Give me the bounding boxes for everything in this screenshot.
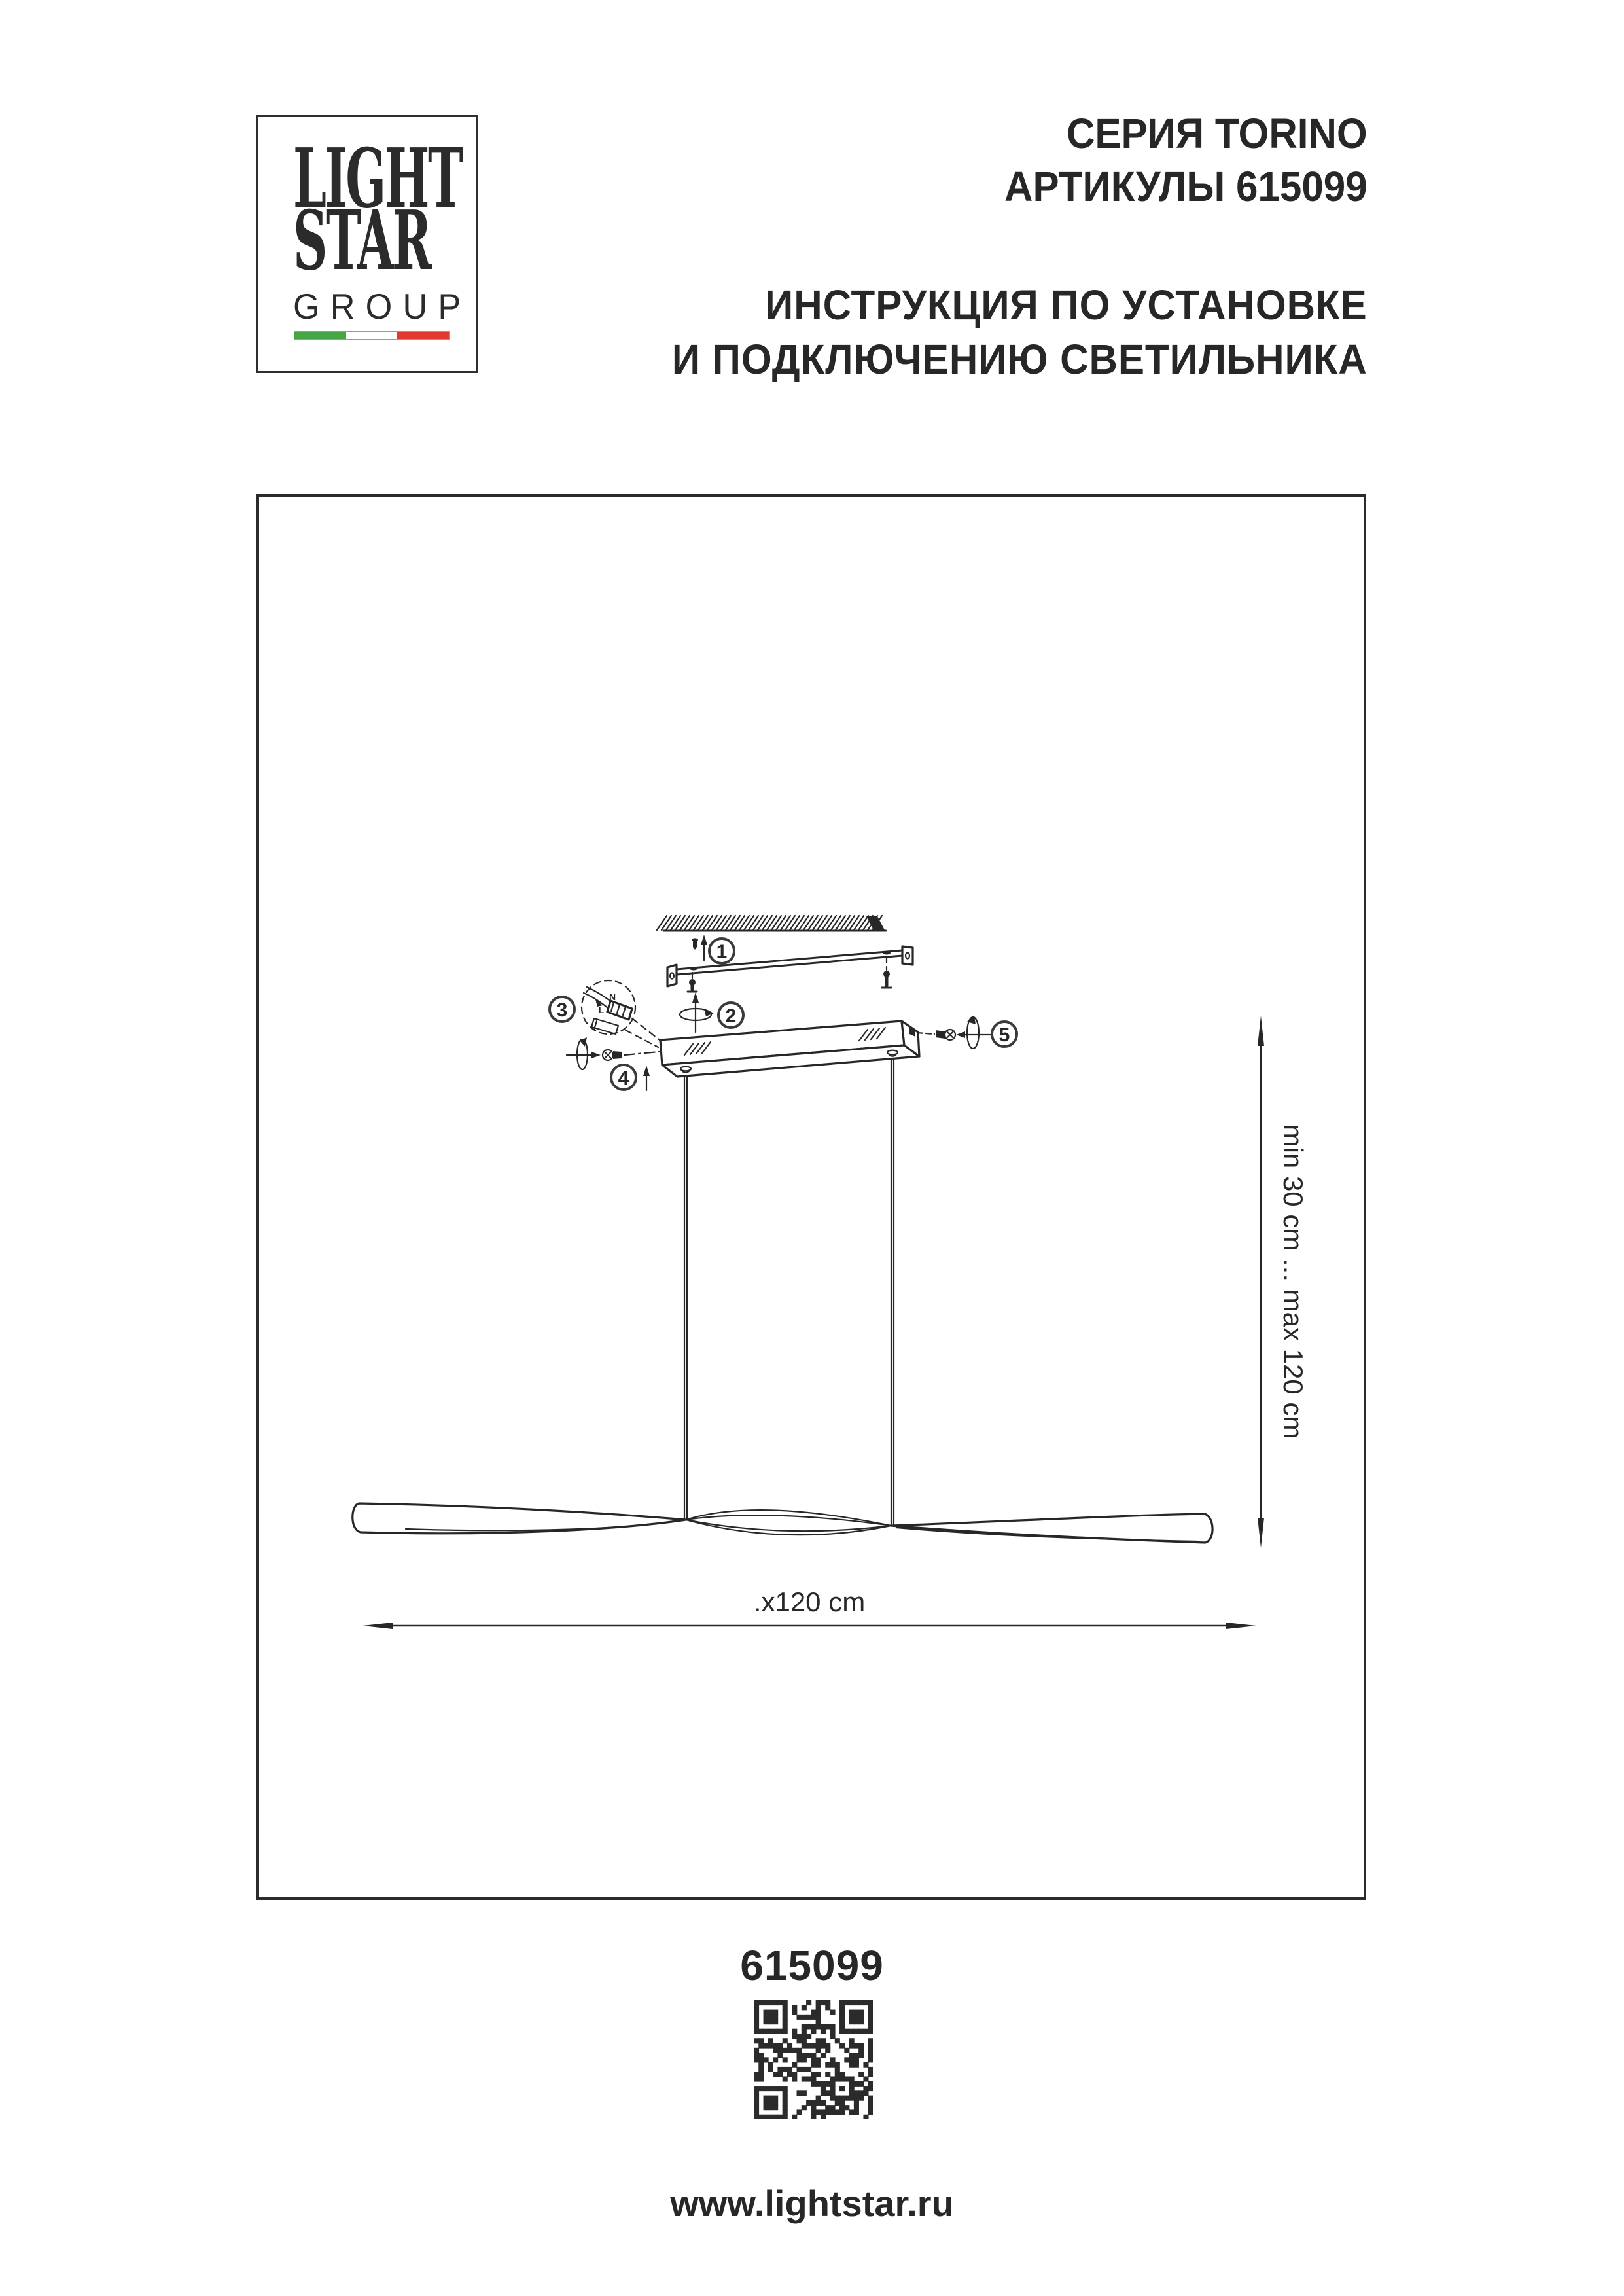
side-screw-left	[567, 1037, 659, 1069]
callout-2: 2	[718, 1003, 743, 1028]
callout-3: 3	[550, 997, 574, 1022]
flag-red-segment	[397, 332, 449, 339]
installation-diagram-frame: 1 2	[256, 494, 1366, 1900]
ceiling-screw-head	[692, 938, 698, 941]
logo-word-group: GROUP	[293, 285, 471, 327]
ceiling-screw-body	[693, 941, 697, 950]
bracket-right-keyhole	[883, 952, 891, 955]
screw5-arrow-head	[956, 1031, 965, 1038]
callout-2-number: 2	[726, 1005, 737, 1027]
callout-5-number: 5	[999, 1024, 1010, 1046]
ceiling-hatch-lines	[657, 916, 882, 930]
instruction-line-1: ИНСТРУКЦИЯ ПО УСТАНОВКЕ	[672, 278, 1368, 332]
canopy-box	[660, 1021, 919, 1077]
suspension-wires	[684, 1059, 894, 1526]
screw4-axis	[624, 1052, 659, 1055]
installation-diagram: 1 2	[259, 497, 1364, 1897]
wiring-detail: N L	[582, 980, 660, 1047]
dim-v-label: min 30 cm ... max 120 cm	[1278, 1124, 1309, 1439]
article-title: АРТИКУЛЫ 615099	[672, 160, 1368, 213]
qr-code	[754, 2000, 873, 2119]
footer-article-number: 615099	[0, 1941, 1624, 1990]
rotation-arrow-head	[704, 1009, 714, 1016]
up-arrow-step4	[643, 1066, 650, 1090]
arrow-head	[643, 1066, 650, 1076]
callout-4-number: 4	[618, 1067, 629, 1089]
screw5-body	[936, 1030, 945, 1039]
ceiling-screw	[692, 938, 698, 950]
dimension-horizontal: .x120 cm	[362, 1587, 1256, 1629]
callout-4: 4	[611, 1065, 636, 1090]
dim-v-arrow-top	[1258, 1016, 1264, 1046]
terminal-label-l: L	[599, 1005, 605, 1015]
header-text-block: СЕРИЯ TORINO АРТИКУЛЫ 615099 ИНСТРУКЦИЯ …	[672, 107, 1368, 387]
detail-leader-2	[626, 1030, 658, 1047]
callout-1: 1	[709, 939, 734, 963]
right-stud	[882, 957, 891, 988]
footer-website: www.lightstar.ru	[0, 2182, 1624, 2225]
dimension-vertical: min 30 cm ... max 120 cm	[1258, 1016, 1309, 1548]
dim-h-arrow-right	[1226, 1623, 1256, 1629]
callout-1-number: 1	[716, 941, 728, 963]
side-screw-right	[917, 1015, 992, 1049]
lamp-right-blade	[891, 1514, 1212, 1543]
detail-leader-1	[632, 1018, 660, 1040]
arrow-head	[701, 935, 707, 945]
lamp-body	[353, 1503, 1212, 1543]
lightstar-logo: LIGHT STAR GROUP	[256, 115, 478, 373]
dim-h-arrow-left	[362, 1623, 393, 1629]
instruction-line-2: И ПОДКЛЮЧЕНИЮ СВЕТИЛЬНИКА	[672, 332, 1368, 387]
instruction-title-block: ИНСТРУКЦИЯ ПО УСТАНОВКЕ И ПОДКЛЮЧЕНИЮ СВ…	[672, 278, 1368, 387]
lamp-twist-upper-lens	[686, 1510, 891, 1526]
up-arrow-step1	[701, 935, 707, 960]
series-title: СЕРИЯ TORINO	[672, 107, 1368, 160]
qr-code-block	[754, 2000, 873, 2119]
instruction-page: LIGHT STAR GROUP СЕРИЯ TORINO АРТИКУЛЫ 6…	[0, 0, 1624, 2296]
terminal-label-n: N	[609, 992, 616, 1002]
ceiling-hatch	[657, 916, 886, 931]
dim-v-arrow-bottom	[1258, 1518, 1264, 1548]
italian-flag-bar	[294, 331, 450, 340]
bracket-left-flange	[667, 965, 677, 986]
screw4-body	[613, 1051, 622, 1059]
bracket-left-keyhole	[690, 967, 697, 971]
callout-5: 5	[992, 1022, 1017, 1047]
left-stud	[688, 973, 697, 992]
series-block: СЕРИЯ TORINO АРТИКУЛЫ 615099	[672, 107, 1368, 214]
mounting-bracket	[667, 935, 913, 992]
up-arrow-head	[692, 992, 699, 1003]
dim-h-label: .x120 cm	[754, 1587, 865, 1617]
screw4-arrow-head	[591, 1052, 601, 1058]
logo-word-star: STAR	[293, 200, 431, 282]
rotate-icon-step2	[680, 992, 714, 1032]
bracket-right-flange	[902, 946, 913, 965]
screw5-axis	[917, 1033, 934, 1034]
callout-3-number: 3	[557, 999, 568, 1021]
flag-white-segment	[346, 332, 398, 339]
lamp-left-blade	[353, 1503, 686, 1534]
flag-green-segment	[294, 332, 346, 339]
